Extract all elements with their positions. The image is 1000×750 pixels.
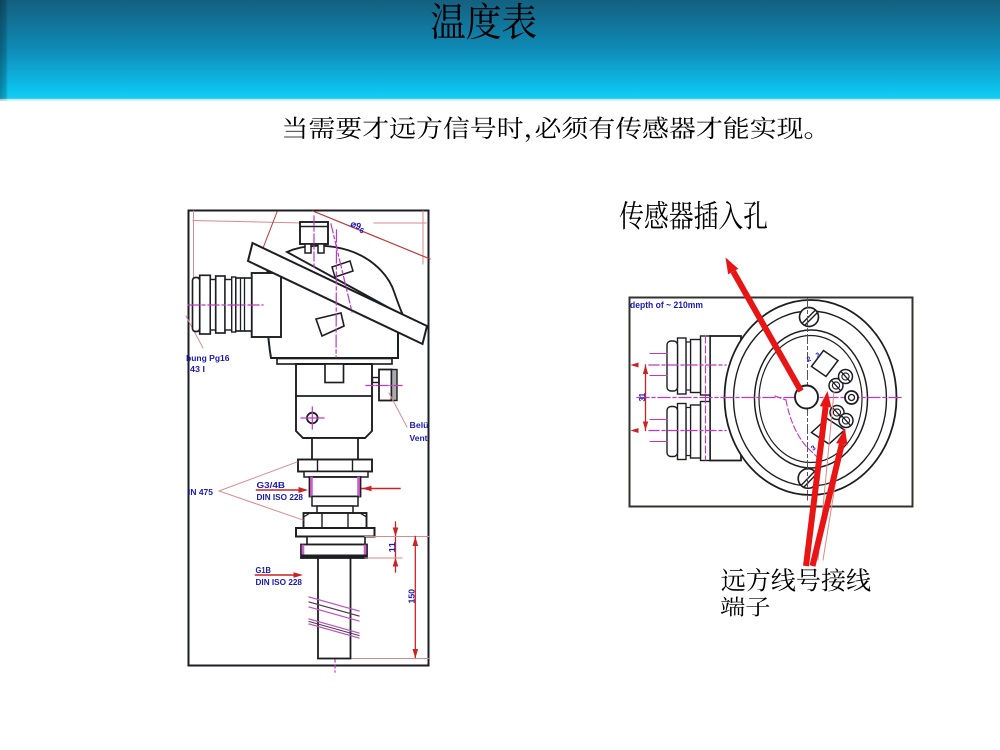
svg-text:G1B: G1B xyxy=(256,565,272,575)
svg-text:DIN ISO 228: DIN ISO 228 xyxy=(257,492,304,502)
svg-text:⌀96: ⌀96 xyxy=(348,219,366,236)
svg-text:11: 11 xyxy=(387,542,397,553)
svg-text:Belü: Belü xyxy=(410,420,429,430)
svg-text:31: 31 xyxy=(638,392,647,401)
svg-text:bung Pg16: bung Pg16 xyxy=(186,353,230,363)
svg-text:depth of ~ 210mm: depth of ~ 210mm xyxy=(630,300,703,310)
svg-text:IN 475: IN 475 xyxy=(188,487,213,497)
svg-text:Vent: Vent xyxy=(410,433,428,443)
svg-text:G3/4B: G3/4B xyxy=(257,480,286,490)
svg-text:DIN ISO 228: DIN ISO 228 xyxy=(256,577,303,587)
svg-text:43 I: 43 I xyxy=(190,364,205,374)
svg-text:150: 150 xyxy=(407,589,417,604)
